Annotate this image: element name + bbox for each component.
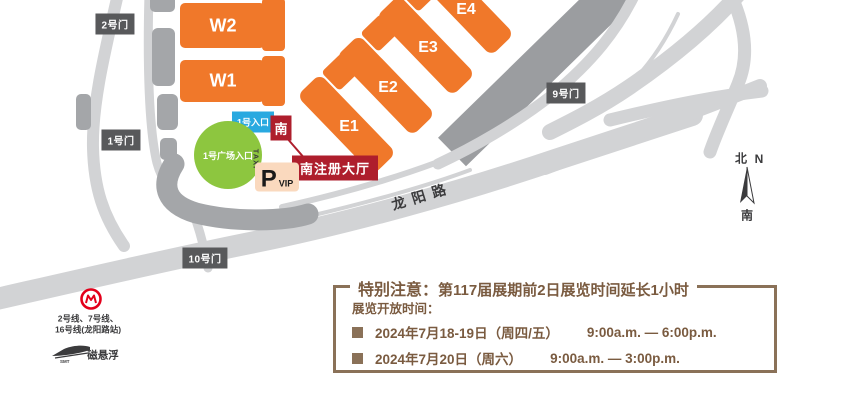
svg-text:SMT: SMT xyxy=(60,359,70,364)
gate-9-label: 9号门 xyxy=(546,83,585,104)
notice-title: 特别注意：第117届展期前2日展览时间延长1小时 xyxy=(350,276,697,300)
hall-e1-label: E1 xyxy=(339,118,359,136)
plaza-entrance-label: 1号广场入口 xyxy=(203,149,253,162)
hall-w2-label: W2 xyxy=(210,16,237,37)
hall-w1-label: W1 xyxy=(210,71,237,92)
hall-e3-label: E3 xyxy=(418,39,438,57)
vip-parking: P VIP xyxy=(255,163,299,192)
gate-2-label: 2号门 xyxy=(95,14,134,35)
maglev-label: 磁悬浮 xyxy=(87,348,119,363)
special-notice-box: 特别注意：第117届展期前2日展览时间延长1小时 展览开放时间： 2024年7月… xyxy=(333,285,777,373)
notice-subtitle: 展览开放时间： xyxy=(352,298,774,317)
compass-north-en: N xyxy=(755,152,764,166)
venue-map: SMT 2号门 1号门 10号门 9号门 W2 W1 E1 E2 E3 E4 1… xyxy=(0,0,850,414)
notice-title-label: 特别注意： xyxy=(358,282,438,299)
parking-vip-label: VIP xyxy=(279,179,294,189)
compass-south-cn: 南 xyxy=(741,207,753,224)
metro-lines-1: 2号线、7号线、 xyxy=(58,314,118,325)
notice-time: 9:00a.m. — 3:00p.m. xyxy=(550,351,680,366)
maglev-icon: SMT xyxy=(52,346,90,364)
bullet-square-icon xyxy=(352,327,363,338)
notice-date: 2024年7月18-19日（周四/五） xyxy=(375,322,559,342)
south-registration-hall-label: 南注册大厅 xyxy=(292,156,378,181)
notice-title-text: 第117届展期前2日展览时间延长1小时 xyxy=(438,282,689,299)
compass-north-cn: 北 xyxy=(735,150,747,167)
south-badge: 南 xyxy=(270,116,291,141)
metro-lines-2: 16号线(龙阳路站) xyxy=(55,325,121,336)
metro-logo-icon xyxy=(82,290,101,309)
road-west-outer xyxy=(93,0,124,246)
notice-date: 2024年7月20日（周六） xyxy=(375,348,522,368)
notice-row: 2024年7月20日（周六） 9:00a.m. — 3:00p.m. xyxy=(352,348,774,368)
compass-needle xyxy=(740,167,754,203)
gate-10-label: 10号门 xyxy=(182,248,227,269)
hall-e4-label: E4 xyxy=(456,1,476,19)
hall-e2-label: E2 xyxy=(378,79,398,97)
gate-1-label: 1号门 xyxy=(101,130,140,151)
notice-time: 9:00a.m. — 6:00p.m. xyxy=(587,325,717,340)
bullet-square-icon xyxy=(352,353,363,364)
notice-row: 2024年7月18-19日（周四/五） 9:00a.m. — 6:00p.m. xyxy=(352,322,774,342)
parking-p-label: P xyxy=(261,170,277,190)
